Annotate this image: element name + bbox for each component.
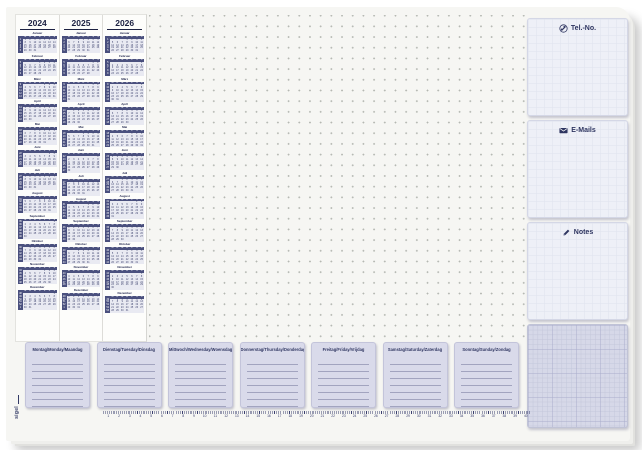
day-number (96, 262, 101, 265)
ruled-line (104, 386, 155, 393)
ruled-line (318, 400, 369, 407)
ruler-number: 32 (435, 414, 446, 419)
brand-divider-line (18, 395, 19, 404)
ruled-line (32, 386, 83, 393)
day-number (139, 167, 144, 170)
mini-month-grid: MDMDFSS221223345678924101112131415162517… (18, 150, 57, 167)
ruler-number: 12 (221, 414, 232, 419)
mini-month: JuniMDMDFSS22122334567892410111213141516… (18, 146, 57, 167)
day-number (52, 73, 57, 76)
day-number (139, 122, 144, 125)
day-card-header: Dienstag/Tuesday/Dinsdag (98, 347, 161, 352)
email-icon (559, 126, 568, 135)
day-number (96, 99, 101, 102)
ruler-number: 22 (328, 414, 339, 419)
mini-month-grid: MDMDFSS311233245678910331112131415161734… (62, 201, 101, 218)
mini-month: AprilMDMDFSS1412345671589101112131416151… (18, 100, 57, 121)
mini-month-grid: MDMDFSS361234563778910111213381415161718… (105, 224, 144, 241)
ruler-number: 40 (520, 414, 531, 419)
sidebar-card-notes: Notes (527, 222, 628, 320)
mini-month: OktoberMDMDFSS40123456417891011121342141… (18, 240, 57, 261)
ruler-number: 15 (253, 414, 264, 419)
ruled-line (390, 386, 441, 393)
mini-month-grid: MDMDFSS491234565078910111213511415161718… (105, 296, 144, 313)
day-card-lines (32, 358, 83, 407)
ruler-number: 3 (124, 414, 135, 419)
ruler-number: 18 (285, 414, 296, 419)
ruled-line (247, 365, 298, 372)
day-number: 31 (139, 145, 144, 148)
ruler-numbers: 1234567891011121314151617181920212223242… (103, 414, 531, 419)
mini-month-grid: MDMDFSS311234325678910113312131415161718… (18, 196, 57, 213)
day-number (52, 50, 57, 53)
ruler-number: 19 (296, 414, 307, 419)
mini-month: AugustMDMDFSS311232345678933101112131415… (105, 195, 144, 219)
ruled-line (461, 365, 512, 372)
mini-month-grid: MDMDFSS271234562878910111213291415161718… (62, 179, 101, 196)
ruled-line (104, 393, 155, 400)
mini-month: JanuarMDMDFSS112345672891011121314315161… (18, 32, 57, 53)
mini-month: MärzMDMDFSS91210345678911101112131415161… (62, 78, 101, 102)
ruled-line (175, 358, 226, 365)
mini-month-grid: MDMDFSS401234415678910114212131415161718… (105, 247, 144, 264)
day-card-lines (461, 358, 512, 407)
mini-month: MaiMDMDFSS181234195678910112012131415161… (62, 126, 101, 147)
ruler-number: 28 (392, 414, 403, 419)
mini-month: JuliMDMDFSS27123452867891011122913141516… (105, 172, 144, 193)
day-number (139, 262, 144, 265)
mini-month: MaiMDMDFSS181231945678910201112131415161… (105, 126, 144, 147)
sidebar-card-header: E-Mails (528, 121, 627, 135)
ruled-line (104, 379, 155, 386)
ruled-line (318, 358, 369, 365)
mini-month: SeptemberMDMDFSS361234567378910111213143… (62, 220, 101, 241)
ruler-number: 27 (381, 414, 392, 419)
mini-month: JuniMDMDFSS22123234567824910111213141525… (62, 149, 101, 173)
mini-month-grid: MDMDFSS181231945678910201112131415161721… (105, 130, 144, 147)
ruled-line (318, 372, 369, 379)
day-number (52, 142, 57, 145)
day-card: Freitag/Friday/Vrijdag (311, 342, 376, 408)
mini-month-grid: MDMDFSS912310456789101111121314151617121… (18, 82, 57, 99)
mini-month: FebruarMDMDFSS51623456787910111213141581… (105, 55, 144, 76)
day-number (52, 119, 57, 122)
ruled-line (104, 365, 155, 372)
ruler-number: 31 (424, 414, 435, 419)
ruler-number: 11 (210, 414, 221, 419)
mini-month: JuliMDMDFSS27123456287891011121329141516… (62, 175, 101, 196)
mini-month: OktoberMDMDFSS40123441567891011421213141… (105, 243, 144, 264)
ruler-number: 13 (231, 414, 242, 419)
ruled-line (175, 365, 226, 372)
ruled-line (175, 372, 226, 379)
day-card-header: Sonntag/Sunday/Zondag (455, 347, 518, 352)
mini-month: OktoberMDMDFSS40123454167891011124213141… (62, 243, 101, 264)
mini-month: NovemberMDMDFSS4412345456789104611121314… (18, 263, 57, 284)
mini-month-grid: MDMDFSS112342567891011312131415161718419… (105, 36, 144, 53)
ruled-line (461, 393, 512, 400)
ruler-number: 25 (360, 414, 371, 419)
ruler-number: 37 (488, 414, 499, 419)
mini-month-grid: MDMDFSS141234567158910111213141615161718… (18, 104, 57, 121)
ruler-number: 4 (135, 414, 146, 419)
ruled-line (461, 372, 512, 379)
mini-month-grid: MDMDFSS361234567378910111213143815161718… (62, 224, 101, 241)
day-number: 30 (96, 284, 101, 287)
ruler-number: 17 (274, 414, 285, 419)
day-number (96, 50, 101, 53)
mini-month-grid: MDMDFSS516234567879101112131415816171819… (105, 59, 144, 76)
mini-month: SeptemberMDMDFSS351362345678379101112131… (18, 215, 57, 239)
mini-month-grid: MDMDFSS181234519678910111220131415161718… (18, 127, 57, 144)
day-number (139, 73, 144, 76)
day-number (52, 282, 57, 285)
ruler-number: 33 (446, 414, 457, 419)
ruler-number: 9 (189, 414, 200, 419)
sidebar-card-header: Tel.-No. (528, 19, 627, 33)
ruled-line (247, 372, 298, 379)
ruler-number: 20 (306, 414, 317, 419)
ruler-number: 14 (242, 414, 253, 419)
day-card-header: Samstag/Saturday/Zaterdag (384, 347, 447, 352)
day-number (139, 310, 144, 313)
ruled-line (175, 393, 226, 400)
day-number (96, 170, 101, 173)
ruler-number: 24 (349, 414, 360, 419)
ruler-number: 10 (199, 414, 210, 419)
ruler-number: 34 (456, 414, 467, 419)
year-label: 2025 (64, 18, 99, 30)
mini-month-grid: MDMDFSS512346567891011712131415161718819… (18, 59, 57, 76)
ruler-number: 16 (264, 414, 275, 419)
ruled-line (32, 400, 83, 407)
day-number (96, 145, 101, 148)
ruled-line (32, 393, 83, 400)
day-number (52, 187, 57, 190)
mini-month-grid: MDMDFSS141234515678910111216131415161718… (105, 107, 144, 124)
mini-month: FebruarMDMDFSS51234656789101171213141516… (18, 55, 57, 76)
mini-month-grid: MDMDFSS181234195678910112012131415161718… (62, 130, 101, 147)
mini-month-grid: MDMDFSS441245345678946101112131415164717… (62, 270, 101, 287)
day-number (139, 190, 144, 193)
ruler-number: 23 (338, 414, 349, 419)
ruled-line (390, 393, 441, 400)
mini-month-grid: MDMDFSS912103456789111011121314151612171… (62, 82, 101, 102)
ruler-number: 8 (178, 414, 189, 419)
mini-month-grid: MDMDFSS491234567508910111213145115161718… (62, 293, 101, 310)
day-number (139, 50, 144, 53)
ruled-line (175, 386, 226, 393)
day-card: Dienstag/Tuesday/Dinsdag (97, 342, 162, 408)
ruled-line (247, 379, 298, 386)
day-number (139, 239, 144, 242)
day-number (139, 99, 144, 102)
mini-month: MärzMDMDFSS91102345678119101112131415121… (105, 78, 144, 102)
weekly-planner-strip: Montag/Monday/MaandagDienstag/Tuesday/Di… (25, 342, 519, 408)
sidebar-card-label: Tel.-No. (571, 25, 596, 32)
ruled-line (32, 365, 83, 372)
mini-month: SeptemberMDMDFSS361234563778910111213381… (105, 220, 144, 241)
ruled-line (175, 379, 226, 386)
ruled-line (32, 379, 83, 386)
sidebar-card-emails: E-Mails (527, 120, 628, 218)
sidebar-card-label: Notes (574, 229, 593, 236)
mini-month-grid: MDMDFSS351362345678379101112131415381617… (18, 219, 57, 239)
ruled-line (247, 400, 298, 407)
day-card: Mittwoch/Wednesday/Woensdag (168, 342, 233, 408)
mini-month-grid: MDMDFSS512634567897101112131415168171819… (62, 59, 101, 76)
ruled-line (461, 386, 512, 393)
dot-grid-note-area (149, 15, 525, 340)
brand-logo: sigel (14, 406, 20, 419)
mini-month: DezemberMDMDFSS4814923456785091011121314… (18, 286, 57, 310)
day-number: 31 (52, 96, 57, 99)
ruled-line (318, 365, 369, 372)
ruler-number: 6 (157, 414, 168, 419)
year-label: 2024 (20, 18, 55, 30)
day-number (52, 210, 57, 213)
day-number (52, 307, 57, 310)
ruler-number: 2 (114, 414, 125, 419)
mini-month-grid: MDMDFSS112345267891011123131415161718194… (62, 36, 101, 53)
day-number (52, 259, 57, 262)
ruled-line (461, 379, 512, 386)
day-card-header: Donnerstag/Thursday/Donderdag (241, 347, 304, 352)
mini-month-grid: MDMDFSS441234545678910461112131415161747… (18, 267, 57, 284)
phone-icon (559, 24, 568, 33)
day-card-header: Freitag/Friday/Vrijdag (312, 347, 375, 352)
ruled-line (32, 358, 83, 365)
day-number: 31 (96, 216, 101, 219)
day-card-header: Mittwoch/Wednesday/Woensdag (169, 347, 232, 352)
day-card-lines (247, 358, 298, 407)
day-number (96, 73, 101, 76)
mini-month-grid: MDMDFSS231234567248910111213142515161718… (105, 153, 144, 170)
ruled-line (104, 400, 155, 407)
ruler-number: 26 (371, 414, 382, 419)
ruled-line (32, 372, 83, 379)
day-number (139, 287, 144, 290)
mini-month: NovemberMDMDFSS4412453456789461011121314… (62, 266, 101, 287)
mini-month-grid: MDMDFSS271234567288910111213142915161718… (18, 173, 57, 190)
mini-month: JanuarMDMDFSS112342567891011312131415161… (105, 32, 144, 53)
mini-month: AprilMDMDFSS1412345615789101112131614151… (62, 103, 101, 124)
ruler-number: 29 (403, 414, 414, 419)
year-column: 2026JanuarMDMDFSS11234256789101131213141… (102, 15, 146, 341)
ruler-number: 30 (413, 414, 424, 419)
mini-month: JuniMDMDFSS23123456724891011121314251516… (105, 149, 144, 170)
year-column: 2024JanuarMDMDFSS11234567289101112131431… (16, 15, 59, 341)
day-number (96, 307, 101, 310)
pencil-icon (562, 228, 571, 237)
year-column: 2025JanuarMDMDFSS11234526789101112313141… (59, 15, 103, 341)
ruled-line (390, 379, 441, 386)
mini-month: AprilMDMDFSS1412345156789101112161314151… (105, 103, 144, 124)
day-card-lines (104, 358, 155, 407)
mini-month: AugustMDMDFSS311234325678910113312131415… (18, 192, 57, 213)
ruled-line (390, 358, 441, 365)
year-label: 2026 (107, 18, 142, 30)
ruled-line (390, 400, 441, 407)
ruled-line (247, 393, 298, 400)
ruler-number: 36 (478, 414, 489, 419)
day-card-lines (390, 358, 441, 407)
day-card: Donnerstag/Thursday/Donderdag (240, 342, 305, 408)
ruler-number: 5 (146, 414, 157, 419)
ruler-number: 1 (103, 414, 114, 419)
day-number: 30 (52, 164, 57, 167)
mini-month-grid: MDMDFSS401234541678910111242131415161718… (62, 247, 101, 264)
ruled-line (247, 386, 298, 393)
mini-month-grid: MDMDFSS401234564178910111213421415161718… (18, 244, 57, 261)
day-card: Sonntag/Sunday/Zondag (454, 342, 519, 408)
day-number (52, 236, 57, 239)
day-card-lines (318, 358, 369, 407)
ruled-line (247, 358, 298, 365)
mini-month: JuliMDMDFSS27123456728891011121314291516… (18, 169, 57, 190)
desk-pad-sheet: 2024JanuarMDMDFSS11234567289101112131431… (6, 7, 630, 441)
ruled-line (104, 372, 155, 379)
mini-month: MaiMDMDFSS181234519678910111220131415161… (18, 123, 57, 144)
mini-month-grid: MDMDFSS141234561578910111213161415161718… (62, 107, 101, 124)
day-number (139, 216, 144, 219)
mini-month-grid: MDMDFSS112345672891011121314315161718192… (18, 36, 57, 53)
sidebar-card-tel: Tel.-No. (527, 18, 628, 116)
mini-month-grid: MDMDFSS271234528678910111229131415161718… (105, 176, 144, 193)
mini-month: JanuarMDMDFSS112345267891011123131415161… (62, 32, 101, 53)
ruled-line (104, 358, 155, 365)
ruled-line (318, 379, 369, 386)
mini-month: AugustMDMDFSS311233245678910331112131415… (62, 198, 101, 219)
ruled-line (390, 372, 441, 379)
day-number (96, 122, 101, 125)
mini-month-grid: MDMDFSS911023456781191011121314151216171… (105, 82, 144, 102)
mini-month: MärzMDMDFSS91231045678910111112131415161… (18, 78, 57, 99)
mini-month-grid: MDMDFSS221232345678249101112131415251617… (62, 153, 101, 173)
day-card-lines (175, 358, 226, 407)
ruler-number: 7 (167, 414, 178, 419)
day-number (96, 193, 101, 196)
mini-month-grid: MDMDFSS441452345678469101112131415471617… (105, 270, 144, 290)
ruled-line (175, 400, 226, 407)
ruler-number: 38 (499, 414, 510, 419)
mini-month-grid: MDMDFSS481492345678509101112131415511617… (18, 290, 57, 310)
ruled-line (461, 358, 512, 365)
day-card: Samstag/Saturday/Zaterdag (383, 342, 448, 408)
sidebar: Tel.-No.E-MailsNotes (527, 18, 628, 428)
sidebar-card-header: Notes (528, 223, 627, 237)
cm-ruler: 1234567891011121314151617181920212223242… (103, 411, 531, 424)
ruler-number: 35 (467, 414, 478, 419)
ruler-number: 39 (510, 414, 521, 419)
ruled-line (318, 386, 369, 393)
graph-paper-card (527, 324, 628, 428)
ruled-line (390, 365, 441, 372)
mini-month: NovemberMDMDFSS4414523456784691011121314… (105, 266, 144, 290)
three-year-calendar-panel: 2024JanuarMDMDFSS11234567289101112131431… (15, 14, 147, 342)
sidebar-card-label: E-Mails (571, 127, 596, 134)
ruled-line (461, 400, 512, 407)
mini-month: DezemberMDMDFSS4912345675089101112131451… (62, 289, 101, 310)
mini-month: FebruarMDMDFSS51263456789710111213141516… (62, 55, 101, 76)
day-card: Montag/Monday/Maandag (25, 342, 90, 408)
day-card-header: Montag/Monday/Maandag (26, 347, 89, 352)
mini-month-grid: MDMDFSS311232345678933101112131415163417… (105, 199, 144, 219)
day-number (96, 239, 101, 242)
ruled-line (318, 393, 369, 400)
mini-month: DezemberMDMDFSS4912345650789101112135114… (105, 292, 144, 313)
ruler-number: 21 (317, 414, 328, 419)
